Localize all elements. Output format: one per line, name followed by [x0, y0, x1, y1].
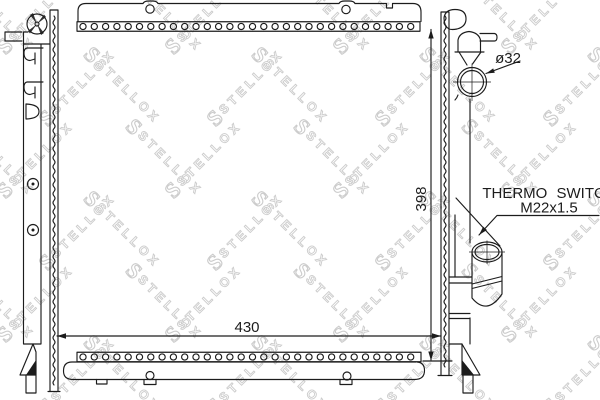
thermo-switch-label-line2: M22x1.5 [520, 200, 578, 217]
core-height-label: 398 [413, 186, 430, 211]
core-width-label: 430 [234, 319, 259, 336]
radiator-technical-drawing: SSTELLOXSSTELLOXSSTELLOXSSTELLOXSSTELLOX… [0, 0, 600, 400]
diameter-label: ø32 [495, 50, 521, 67]
drawing-svg: SSTELLOXSSTELLOXSSTELLOXSSTELLOXSSTELLOX… [0, 0, 600, 400]
